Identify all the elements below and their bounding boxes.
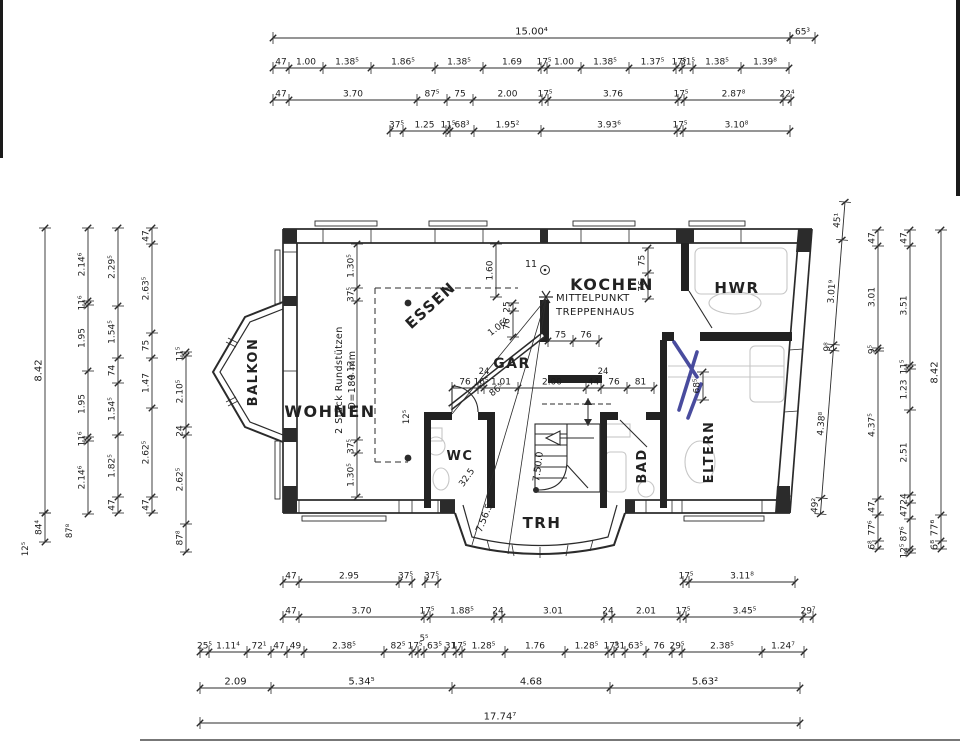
dim-label: 6⁸ — [868, 540, 878, 550]
room-label-wohnen: WOHNEN — [284, 402, 375, 421]
room-label-trh: TRH — [523, 514, 562, 532]
dim-label: 75 — [142, 340, 152, 351]
dim-label: 1.88⁵ — [450, 607, 474, 617]
dim-label: 1.11⁴ — [216, 642, 240, 652]
dim-label: 1.38⁵ — [705, 58, 729, 68]
dim-label: 3.01⁹ — [827, 279, 839, 304]
dim-label: 77⁶ — [868, 520, 878, 535]
columns-note-line1: 2 Stück Rundstützen — [334, 326, 345, 434]
dim-label: 11 — [525, 259, 537, 270]
dim-label: 31 — [614, 642, 625, 652]
dim-label: 2.95 — [339, 572, 359, 582]
dim-label: 3.70 — [351, 607, 371, 617]
dim-label: 22⁴ — [779, 90, 794, 100]
dim-label: 3.76 — [603, 90, 623, 100]
dim-label: 1.30⁵ — [347, 254, 357, 278]
center-note-line2: TREPPENHAUS — [555, 307, 635, 318]
dim-chain-right-col2: 473.019⁵4.37⁵4777⁶6⁸ — [868, 227, 885, 552]
window-ticks — [283, 229, 810, 513]
dim-chain-right-diag: 45¹3.01⁹9⁸4.38⁸49² — [810, 198, 852, 518]
dim-label: 3.10⁸ — [725, 121, 749, 131]
dim-label: 5⁵ — [420, 634, 429, 644]
dim-label: 49 — [290, 642, 302, 652]
dim-label: 44 — [588, 378, 600, 388]
dim-label: 37⁵ — [347, 439, 357, 454]
dim-label: 25 — [503, 301, 513, 312]
dim-label: 1.30⁵ — [347, 463, 357, 487]
dim-label: 1.25 — [414, 121, 434, 131]
dim-label: 47 — [868, 232, 878, 243]
dim-label: 87⁵ — [424, 90, 439, 100]
room-label-hwr: HWR — [714, 279, 759, 297]
dim-label: 17⁵ — [673, 90, 688, 100]
dim-label: 2.09 — [224, 677, 246, 688]
dim-label: 6⁸ — [930, 540, 941, 550]
dim-label: 1.38⁵ — [447, 58, 471, 68]
dim-label: 47 — [142, 499, 152, 510]
dim-label: 2.29⁵ — [108, 255, 118, 279]
dim-label: 47 — [285, 607, 296, 617]
dim-label: 87⁶ — [900, 526, 910, 541]
dim-label: 1.82⁵ — [108, 454, 118, 478]
dim-label: 49² — [810, 497, 821, 513]
dim-label: 81 — [635, 378, 646, 388]
dim-chain-int-kochen-pier: 7576 — [545, 331, 602, 348]
dim-label: 47 — [275, 90, 286, 100]
dim-label: 9⁸ — [823, 342, 834, 352]
columns-note-line2: D=180 mm — [347, 351, 358, 410]
dim-chain-left-col5: 11⁵2.10⁵242.62⁵87⁸ — [176, 346, 193, 555]
dim-label: 1.95² — [496, 121, 520, 131]
dim-label: 72¹ — [251, 642, 266, 652]
dim-label: 87⁸ — [65, 523, 75, 538]
dim-label: 11⁵ — [176, 346, 186, 361]
room-label-eltern: ELTERN — [702, 421, 717, 484]
dim-label: 24 — [900, 493, 910, 505]
dim-chain-bot-row3: 25⁵1.11⁴72¹47492.38⁵82⁵17⁵63⁵3117⁵1.28⁵1… — [197, 642, 807, 659]
dim-label: 63⁵ — [427, 642, 442, 652]
dim-label: 47 — [900, 505, 910, 516]
dim-label: 2.38⁵ — [332, 642, 356, 652]
dim-label: 16⁵ — [473, 378, 488, 388]
dim-label: 65³ — [795, 28, 810, 38]
dim-label: 1.95 — [78, 328, 88, 348]
dim-chain-bot-row4: 2.095.34⁵4.685.63² — [197, 677, 803, 695]
dim-label: 47 — [868, 501, 878, 512]
dim-label: 8.42 — [34, 359, 45, 381]
wall-fills — [283, 229, 812, 513]
dim-label: 3.51 — [900, 295, 910, 315]
center-point-marker — [539, 266, 553, 304]
room-label-gar: GAR — [493, 356, 531, 372]
room-label-kochen: KOCHEN — [570, 275, 654, 294]
dim-label: 47 — [273, 642, 284, 652]
dim-chain-bot-overall: 17.74⁷ — [197, 712, 803, 730]
dim-label: 74 — [108, 365, 118, 377]
dim-label: 1.54⁵ — [108, 320, 118, 344]
dim-chain-top-row3: 473.7087⁵752.0017⁵3.7617⁵2.87⁸22⁴ — [270, 90, 795, 107]
dim-label: 9⁵ — [868, 344, 878, 354]
dim-chain-top-row2: 471.001.38⁵1.86⁵1.38⁵1.6917⁵1.001.38⁵1.3… — [270, 58, 792, 75]
dim-label: 2.87⁸ — [722, 90, 746, 100]
dim-label: 1.69 — [502, 58, 522, 68]
dim-label: 24 — [492, 607, 504, 617]
dim-chain-right-overall: 8.4277⁶6⁸ — [930, 227, 948, 552]
dimension-chains: 15.00⁴65³471.001.38⁵1.86⁵1.38⁵1.6917⁵1.0… — [34, 27, 948, 730]
dim-label: 2.01 — [636, 607, 656, 617]
dim-label: 77⁶ — [930, 520, 941, 537]
dim-label: 11⁶ — [78, 431, 88, 446]
dim-label: 12⁵ — [900, 543, 910, 558]
dim-label: 2.10⁵ — [176, 379, 186, 403]
dim-label: 17⁵ — [678, 572, 693, 582]
dim-label: 4.38⁸ — [816, 411, 828, 436]
dim-label: 5.34⁵ — [348, 677, 374, 688]
dim-label: 1.23 — [900, 379, 910, 399]
dim-label: 1.47 — [142, 373, 152, 393]
dim-label: 47 — [108, 499, 118, 510]
dim-label: 37⁵ — [398, 572, 413, 582]
dim-label: 3.01 — [543, 607, 563, 617]
dim-label: 24 — [602, 607, 614, 617]
dim-label: 2.62⁵ — [176, 467, 186, 491]
dim-label: 15.00⁴ — [515, 27, 548, 38]
dim-label: 3.01 — [868, 287, 878, 307]
dim-label: 17⁵ — [451, 642, 466, 652]
dim-label: 17⁵ — [536, 58, 551, 68]
dim-label: 82⁵ — [390, 642, 405, 652]
dim-chain-left-overall-ext: 84⁴ — [35, 510, 52, 545]
dim-label: 2.00 — [497, 90, 517, 100]
dim-chain-left-overall: 8.42 — [34, 225, 52, 516]
dim-label: 47 — [142, 230, 152, 241]
dim-label: 12⁵ — [21, 542, 31, 556]
dim-label: 2.38⁵ — [710, 642, 734, 652]
room-label-balkon: BALKON — [246, 338, 261, 407]
dim-label: 76 — [580, 331, 592, 341]
dim-label: 4.68 — [520, 677, 542, 688]
dim-label: 17⁵ — [419, 607, 434, 617]
dim-label: 75 — [454, 90, 465, 100]
dim-label: 68⁵ — [693, 378, 703, 393]
dim-label: 1.60 — [486, 260, 496, 280]
dim-label: 47 — [285, 572, 296, 582]
dim-label: 29⁵ — [669, 642, 684, 652]
dim-label: 2.63⁵ — [142, 276, 152, 300]
dim-label: 75 — [555, 331, 566, 341]
dim-chain-left-col4: 472.63⁵751.472.62⁵47 — [142, 225, 159, 516]
room-label-bad: BAD — [635, 448, 650, 483]
dim-chain-bot-row2: 473.7017⁵1.88⁵243.01242.0117⁵3.45⁵29⁷ — [280, 607, 816, 624]
dim-label: 63⁵ — [628, 642, 643, 652]
dim-label: 24 — [598, 367, 609, 377]
dim-label: 2.14⁶ — [78, 465, 88, 489]
dim-chain-top-row4: 37⁵1.2511⁵68³1.95²3.93⁶17⁵3.10⁸ — [387, 121, 793, 138]
dim-chain-left-col3: 2.29⁵1.54⁵741.54⁵1.82⁵47 — [108, 225, 125, 516]
dim-label: 1.38⁵ — [335, 58, 359, 68]
dim-label: 31⁵ — [680, 58, 695, 68]
dim-label: 3.11⁸ — [730, 572, 754, 582]
dim-label: 2.14⁶ — [78, 252, 88, 276]
room-label-wc: WC — [447, 449, 474, 464]
dim-label: 1.00 — [554, 58, 574, 68]
dim-chain-left-col2: 2.14⁶11⁶1.951.9511⁶2.14⁶ — [78, 225, 95, 517]
dim-label: 47 — [900, 232, 910, 243]
dim-label: 75 — [638, 255, 648, 266]
dim-label: 1.39⁸ — [753, 58, 777, 68]
dim-chain-bot-row1-mid: 37⁵ — [422, 572, 441, 589]
dim-label: 1.95 — [78, 394, 88, 414]
dim-chain-top-overall: 15.00⁴ — [270, 27, 793, 45]
dim-label: 1.38⁵ — [593, 58, 617, 68]
dim-label: 24 — [479, 367, 490, 377]
dim-label: 1.76 — [525, 642, 545, 652]
dim-chain-int-hall: 7616⁵1.012.00447681 — [449, 378, 657, 395]
exterior-walls — [283, 229, 812, 513]
dim-label: 1.28⁵ — [472, 642, 496, 652]
dim-label: 32.5 — [458, 467, 478, 489]
dim-label: 17⁵ — [537, 90, 552, 100]
dim-label: 17⁵ — [672, 121, 687, 131]
dim-label: 1.54⁵ — [108, 397, 118, 421]
dim-label: 1.86⁵ — [391, 58, 415, 68]
dim-label: 1.37⁵ — [641, 58, 665, 68]
dim-label: 7.56.5 — [474, 502, 496, 534]
dim-label: 4.37⁵ — [868, 413, 878, 437]
dim-chain-int-kochen-left: 1.60 — [486, 241, 503, 300]
dim-label: 3.45⁵ — [733, 607, 757, 617]
text-labels: WOHNENESSENKOCHENHWRBALKONGARWCBADTRHELT… — [21, 259, 760, 644]
dim-label: 76 — [459, 378, 471, 388]
dim-label: 76 — [653, 642, 665, 652]
dim-label: 24 — [176, 425, 186, 437]
floor-plan-scan: 15.00⁴65³471.001.38⁵1.86⁵1.38⁵1.6917⁵1.0… — [0, 0, 960, 742]
dim-label: 8.42 — [930, 361, 941, 383]
dim-chain-bot-row1-left: 472.9537⁵ — [280, 572, 415, 589]
dim-label: 45¹ — [832, 212, 843, 228]
dim-label: 2.00 — [542, 378, 562, 388]
dim-label: 2.51 — [900, 442, 910, 462]
dim-label: 37⁵ — [347, 287, 357, 302]
dim-label: 37⁵ — [389, 121, 404, 131]
dim-label: 2.62⁵ — [142, 440, 152, 464]
dim-label: 1.24⁷ — [771, 642, 795, 652]
dim-label: 1.28⁵ — [575, 642, 599, 652]
center-note-line1: MITTELPUNKT — [556, 293, 630, 304]
dim-label: 17⁵ — [675, 607, 690, 617]
dim-label: 47 — [275, 58, 286, 68]
dim-label: 84⁴ — [35, 520, 45, 535]
dim-label: 87⁸ — [176, 530, 186, 545]
dim-chain-right-col3: 473.5111⁵1.232.51244787⁶12⁵ — [900, 227, 917, 559]
dim-label: 76 — [608, 378, 620, 388]
dim-label: 11⁵ — [900, 359, 910, 374]
dim-label: 3.93⁶ — [597, 121, 621, 131]
dim-label: 5.63² — [692, 677, 718, 688]
dim-chain-bot-row1-right: 17⁵3.11⁸ — [678, 572, 798, 589]
dim-label: 3.70 — [343, 90, 363, 100]
dim-label: 25⁵ — [197, 642, 212, 652]
dim-label: 11⁶ — [78, 295, 88, 310]
dim-label: 17.74⁷ — [484, 712, 517, 723]
floor-plan-drawing: 15.00⁴65³471.001.38⁵1.86⁵1.38⁵1.6917⁵1.0… — [0, 0, 960, 742]
dim-label: 1.00 — [296, 58, 316, 68]
dim-chain-top-eave-right: 65³ — [787, 28, 818, 45]
dim-label: 68³ — [454, 121, 469, 131]
dim-label: 29⁷ — [800, 607, 815, 617]
dim-label: 12⁵ — [402, 410, 412, 424]
dim-label: 37⁵ — [424, 572, 439, 582]
